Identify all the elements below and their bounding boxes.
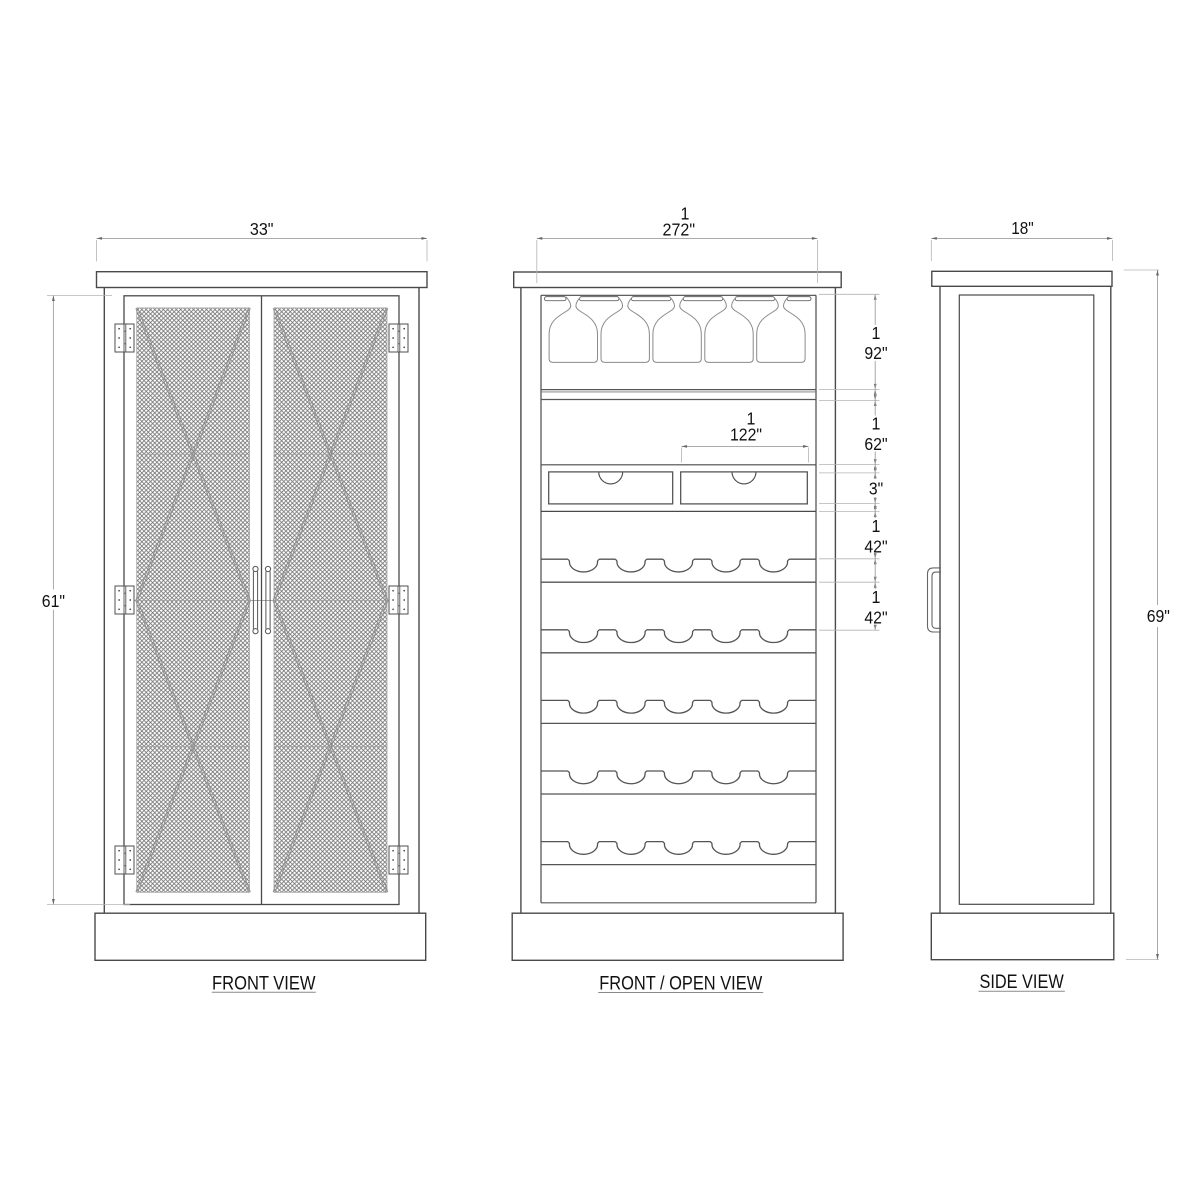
svg-text:92": 92" [864, 343, 887, 363]
svg-text:42": 42" [864, 537, 887, 557]
svg-text:1: 1 [872, 516, 881, 536]
svg-text:33": 33" [250, 219, 274, 239]
svg-text:1: 1 [872, 323, 881, 343]
svg-text:FRONT / OPEN VIEW: FRONT / OPEN VIEW [599, 974, 762, 995]
svg-text:1: 1 [872, 587, 881, 607]
svg-text:272": 272" [663, 220, 696, 240]
svg-text:61": 61" [42, 591, 65, 611]
svg-text:18": 18" [1011, 218, 1034, 238]
svg-text:69": 69" [1147, 606, 1170, 626]
svg-text:1: 1 [872, 414, 881, 434]
svg-text:FRONT VIEW: FRONT VIEW [212, 973, 316, 994]
svg-text:62": 62" [864, 434, 887, 454]
svg-text:42": 42" [864, 608, 887, 628]
svg-text:3": 3" [869, 479, 883, 499]
svg-text:SIDE VIEW: SIDE VIEW [979, 972, 1063, 993]
svg-text:122": 122" [730, 424, 762, 444]
